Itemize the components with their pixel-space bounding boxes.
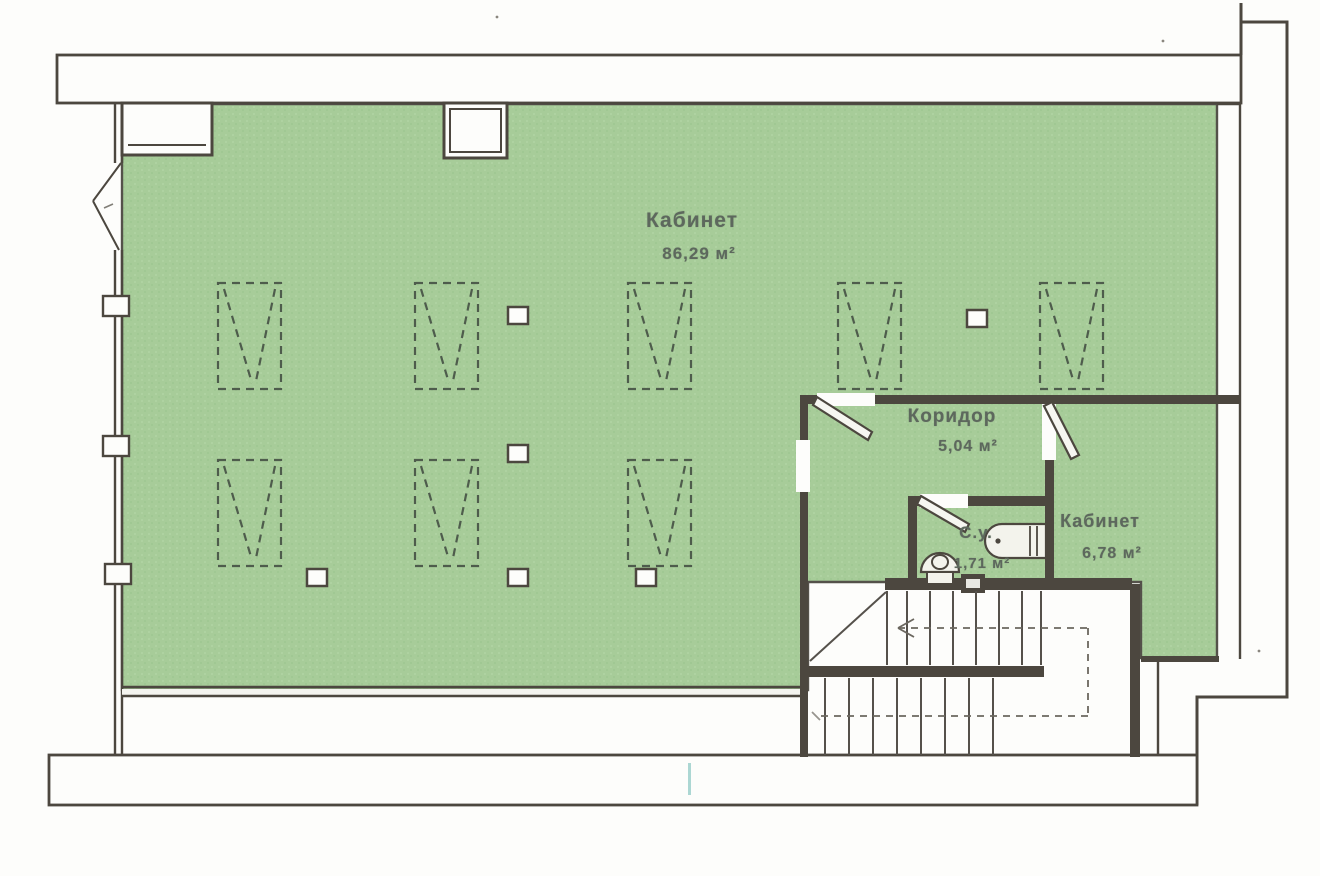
floor-plan-drawing [0, 0, 1320, 876]
room-label-corridor-area: 5,04 м² [868, 438, 1068, 456]
room-label-office-small-area: 6,78 м² [1012, 545, 1212, 563]
room-label-office-main-area: 86,29 м² [599, 245, 799, 264]
opening-main-office [796, 440, 810, 492]
bottom-wall-band [49, 755, 1197, 805]
room-label-office-small-name: Кабинет [1000, 512, 1200, 532]
floor-plan-page: Кабинет 86,29 м² Коридор 5,04 м² С.у. 1,… [0, 0, 1320, 876]
staircase [806, 591, 1088, 755]
room-label-corridor-name: Коридор [852, 407, 1052, 428]
room-label-office-main-name: Кабинет [592, 209, 792, 232]
top-wall-band [57, 55, 1241, 103]
